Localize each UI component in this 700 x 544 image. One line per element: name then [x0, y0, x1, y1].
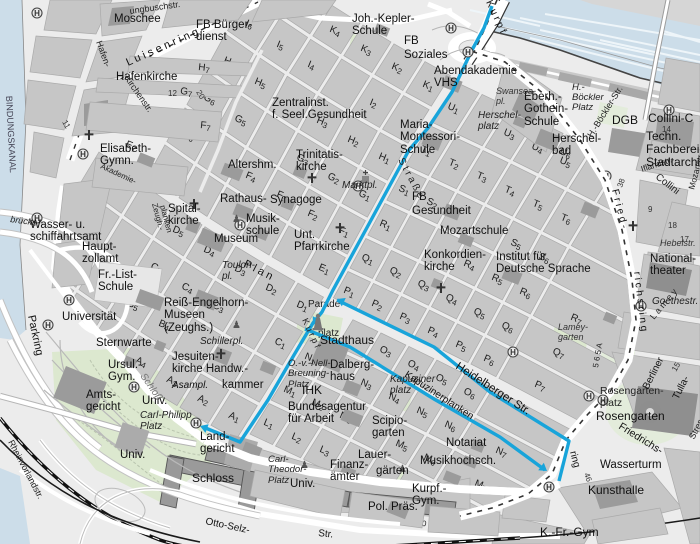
svg-text:H: H [45, 321, 51, 330]
svg-text:ämter: ämter [330, 471, 360, 483]
svg-text:H: H [131, 383, 137, 392]
svg-text:Platz: Platz [268, 475, 289, 486]
svg-text:Kunsthalle: Kunsthalle [588, 483, 644, 497]
svg-text:pl.: pl. [221, 271, 233, 282]
svg-text:gärten: gärten [376, 465, 409, 477]
svg-text:Platz: Platz [572, 102, 593, 113]
svg-text:H: H [546, 483, 552, 492]
svg-text:♟: ♟ [232, 214, 241, 225]
svg-text:garten: garten [558, 332, 584, 342]
svg-text:Herschel-: Herschel- [478, 110, 521, 121]
svg-text:Lamey-: Lamey- [558, 322, 588, 332]
svg-text:IHK: IHK [302, 383, 322, 397]
svg-text:Museen: Museen [164, 309, 205, 321]
svg-text:Schloss: Schloss [192, 471, 234, 485]
svg-text:Str.: Str. [318, 528, 334, 541]
svg-text:Rathaus-: Rathaus- [220, 193, 267, 205]
svg-text:platz: platz [389, 385, 411, 396]
svg-text:Unt.: Unt. [294, 229, 315, 241]
svg-text:platz: platz [477, 121, 499, 132]
svg-text:gericht: gericht [86, 401, 121, 413]
svg-text:Univ.: Univ. [120, 449, 145, 461]
svg-text:H: H [448, 24, 454, 33]
svg-text:Jesuiten-: Jesuiten- [172, 351, 219, 363]
svg-text:kirche: kirche [424, 261, 455, 273]
svg-text:pl.: pl. [495, 96, 506, 106]
svg-text:Theodor-: Theodor- [268, 464, 306, 475]
svg-text:VHS: VHS [434, 77, 458, 89]
svg-text:Museum: Museum [214, 233, 258, 245]
svg-text:Schule: Schule [400, 144, 435, 156]
svg-text:K.-Fr.-Gym: K.-Fr.-Gym [540, 525, 599, 539]
svg-text:Maria-: Maria- [400, 119, 433, 131]
svg-text:H: H [80, 150, 86, 159]
svg-text:Musikhochsch.: Musikhochsch. [420, 455, 496, 467]
svg-text:H: H [66, 296, 72, 305]
svg-text:Wasserturm: Wasserturm [600, 459, 662, 471]
svg-text:Univ.: Univ. [290, 478, 315, 490]
svg-text:Hebelstr.: Hebelstr. [660, 238, 696, 248]
svg-text:H: H [193, 419, 199, 428]
svg-text:Kurpf.-: Kurpf.- [412, 483, 447, 495]
svg-text:theater: theater [650, 265, 686, 277]
svg-text:Fachbereiche: Fachbereiche [646, 142, 700, 156]
svg-text:12: 12 [168, 89, 177, 98]
svg-text:Schule: Schule [98, 281, 133, 293]
svg-text:Techn.: Techn. [646, 129, 681, 143]
svg-text:haus: haus [330, 371, 355, 383]
svg-text:FB: FB [404, 35, 419, 47]
svg-text:H: H [586, 392, 592, 401]
svg-text:(Zeughs.): (Zeughs.) [164, 322, 213, 334]
svg-text:Joh.-Kepler-: Joh.-Kepler- [352, 13, 415, 25]
svg-text:Platz: Platz [140, 421, 162, 432]
svg-text:18: 18 [668, 221, 677, 230]
svg-text:Pol. Präs.: Pol. Präs. [368, 501, 418, 513]
svg-text:Synagoge: Synagoge [270, 194, 322, 206]
svg-text:Gesundheit: Gesundheit [412, 205, 472, 217]
svg-text:gericht: gericht [200, 443, 235, 455]
svg-text:Altershm.: Altershm. [228, 159, 277, 171]
svg-text:Notariat: Notariat [446, 437, 487, 449]
svg-text:DGB: DGB [612, 113, 638, 127]
svg-text:Montessori-: Montessori- [400, 131, 460, 143]
svg-text:Stadtarchiv e: Stadtarchiv e [646, 155, 700, 169]
svg-text:Trinitatis-: Trinitatis- [296, 149, 343, 161]
svg-text:Carl-Philipp: Carl-Philipp [140, 410, 192, 421]
svg-text:für Arbeit: für Arbeit [288, 413, 335, 425]
svg-text:Deutsche Sprache: Deutsche Sprache [496, 263, 591, 275]
svg-text:kirche: kirche [296, 161, 327, 173]
svg-text:Finanz-: Finanz- [330, 459, 369, 471]
svg-text:Fr.-List-: Fr.-List- [98, 269, 137, 281]
svg-text:Institut für: Institut für [496, 251, 547, 263]
svg-text:Sternwarte: Sternwarte [96, 337, 152, 349]
svg-text:bad: bad [552, 145, 571, 157]
svg-text:Elisabeth-: Elisabeth- [100, 143, 151, 155]
svg-text:Soziales: Soziales [404, 49, 448, 61]
svg-text:Gym.: Gym. [108, 371, 135, 383]
svg-text:H: H [34, 9, 40, 18]
svg-text:Schule: Schule [352, 25, 387, 37]
svg-text:Rosengarten: Rosengarten [596, 409, 665, 423]
svg-text:17: 17 [680, 235, 689, 244]
svg-text:Wasser- u.: Wasser- u. [30, 219, 85, 231]
svg-text:H: H [510, 348, 516, 357]
svg-text:Schillerpl.: Schillerpl. [200, 336, 243, 347]
svg-text:Rosengarten-: Rosengarten- [600, 385, 664, 397]
svg-text:Asampl.: Asampl. [171, 380, 208, 391]
svg-text:Abendakademie: Abendakademie [434, 65, 517, 77]
svg-text:Mozartschule: Mozartschule [440, 225, 508, 237]
svg-text:Ursul.-: Ursul.- [108, 359, 142, 371]
svg-text:♟: ♟ [232, 320, 241, 331]
svg-text:Scipio-: Scipio- [372, 415, 407, 427]
svg-text:Pfarrkirche: Pfarrkirche [294, 241, 350, 253]
svg-text:Swansea-: Swansea- [496, 86, 536, 96]
svg-text:Dalberg-: Dalberg- [330, 359, 374, 371]
svg-text:FB Bürger-: FB Bürger- [196, 19, 252, 31]
svg-text:Marktpl.: Marktpl. [342, 180, 378, 191]
svg-text:Spital-: Spital- [168, 203, 201, 215]
svg-text:Land-: Land- [200, 431, 230, 443]
svg-text:9: 9 [648, 205, 653, 214]
svg-text:zollamt: zollamt [82, 253, 119, 265]
svg-text:Bundesagentur: Bundesagentur [288, 401, 366, 413]
svg-text:Konkordien-: Konkordien- [424, 249, 486, 261]
svg-text:Zentralinst.: Zentralinst. [272, 97, 329, 109]
svg-text:Gym.: Gym. [412, 495, 439, 507]
svg-text:Reiß-Engelhorn-: Reiß-Engelhorn- [164, 297, 249, 309]
svg-text:Schule: Schule [524, 116, 559, 128]
svg-text:kammer: kammer [222, 379, 264, 391]
svg-text:Breuning-: Breuning- [288, 368, 329, 379]
svg-text:H: H [465, 48, 471, 57]
svg-text:kirche Handw.-: kirche Handw.- [172, 363, 248, 375]
svg-text:dienst: dienst [196, 31, 227, 43]
svg-text:Musik-: Musik- [246, 213, 280, 225]
svg-text:Universität: Universität [62, 311, 117, 323]
svg-text:National-: National- [650, 253, 696, 265]
svg-text:garten: garten [372, 427, 405, 439]
svg-text:Collini-C: Collini-C [648, 111, 694, 125]
svg-text:Gothein-: Gothein- [524, 103, 568, 115]
svg-text:Haupt-: Haupt- [82, 241, 117, 253]
svg-text:platz: platz [600, 397, 622, 409]
svg-text:Stadthaus: Stadthaus [320, 333, 374, 347]
svg-text:f. Seel.Gesundheit: f. Seel.Gesundheit [272, 109, 367, 121]
svg-text:Amts-: Amts- [86, 389, 116, 401]
